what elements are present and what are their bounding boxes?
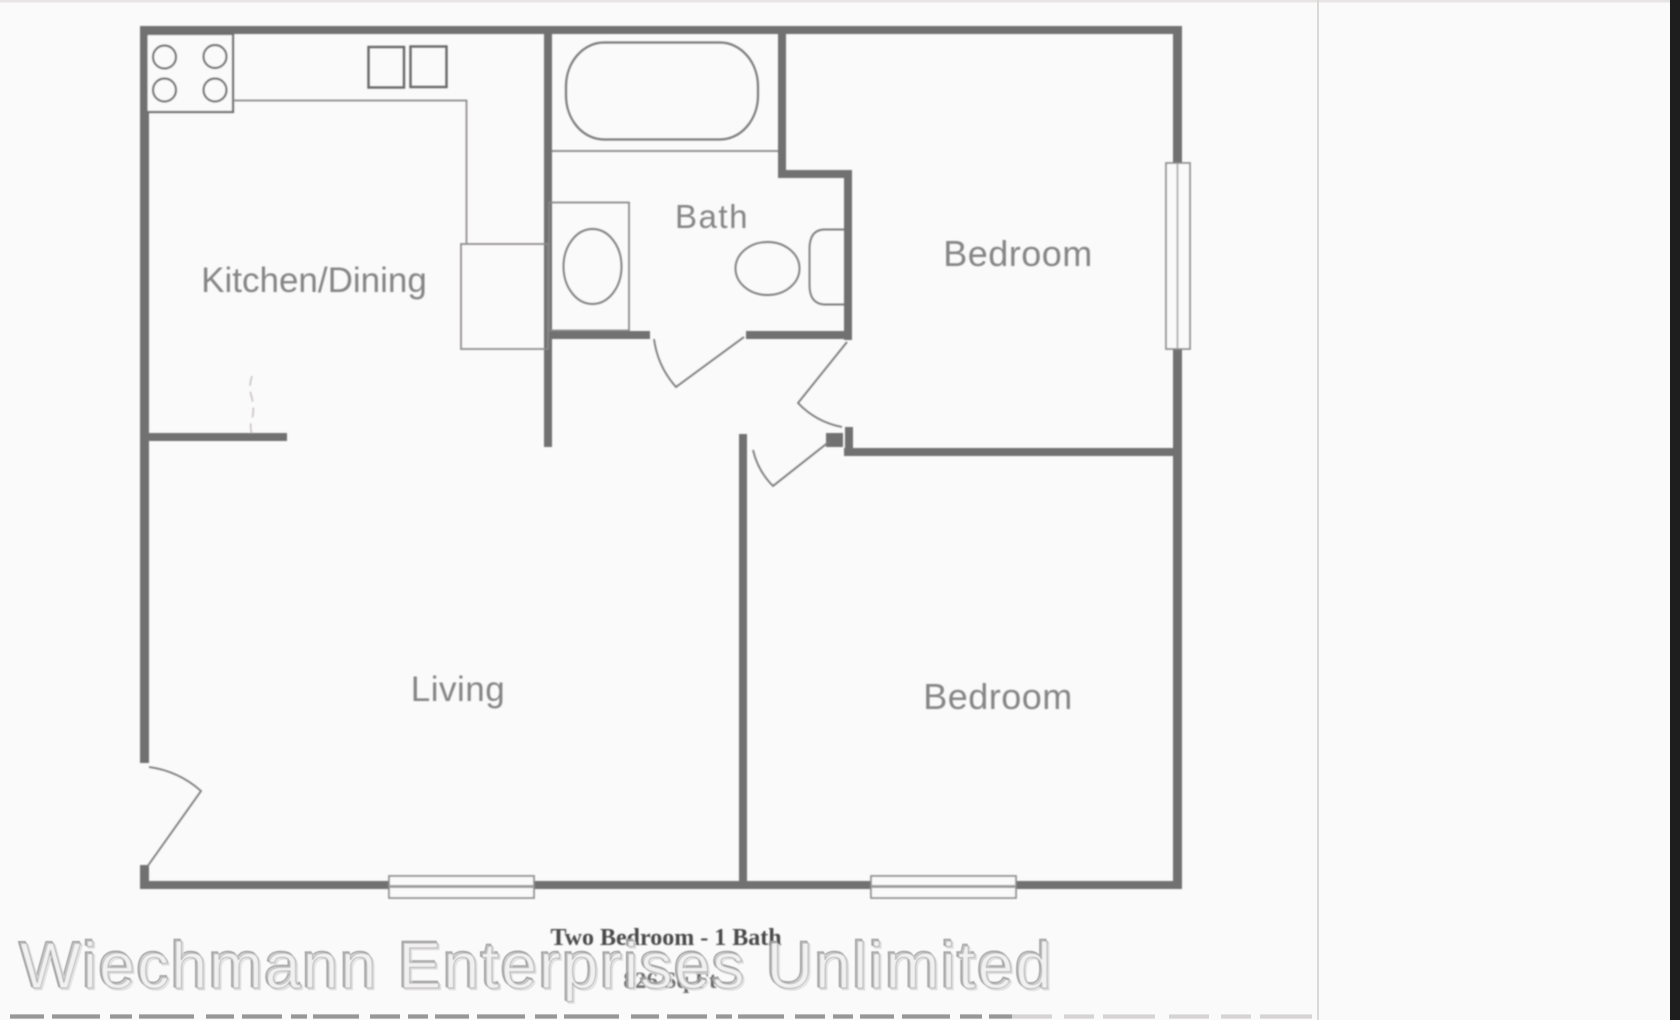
svg-text:Bedroom: Bedroom [943,233,1093,274]
svg-text:Bath: Bath [675,198,749,235]
svg-text:Bedroom: Bedroom [923,676,1073,717]
svg-text:Wiechmann Enterprises Unlimite: Wiechmann Enterprises Unlimited [20,930,1053,1002]
svg-text:Kitchen/Dining: Kitchen/Dining [201,261,427,300]
svg-text:Living: Living [411,670,505,709]
